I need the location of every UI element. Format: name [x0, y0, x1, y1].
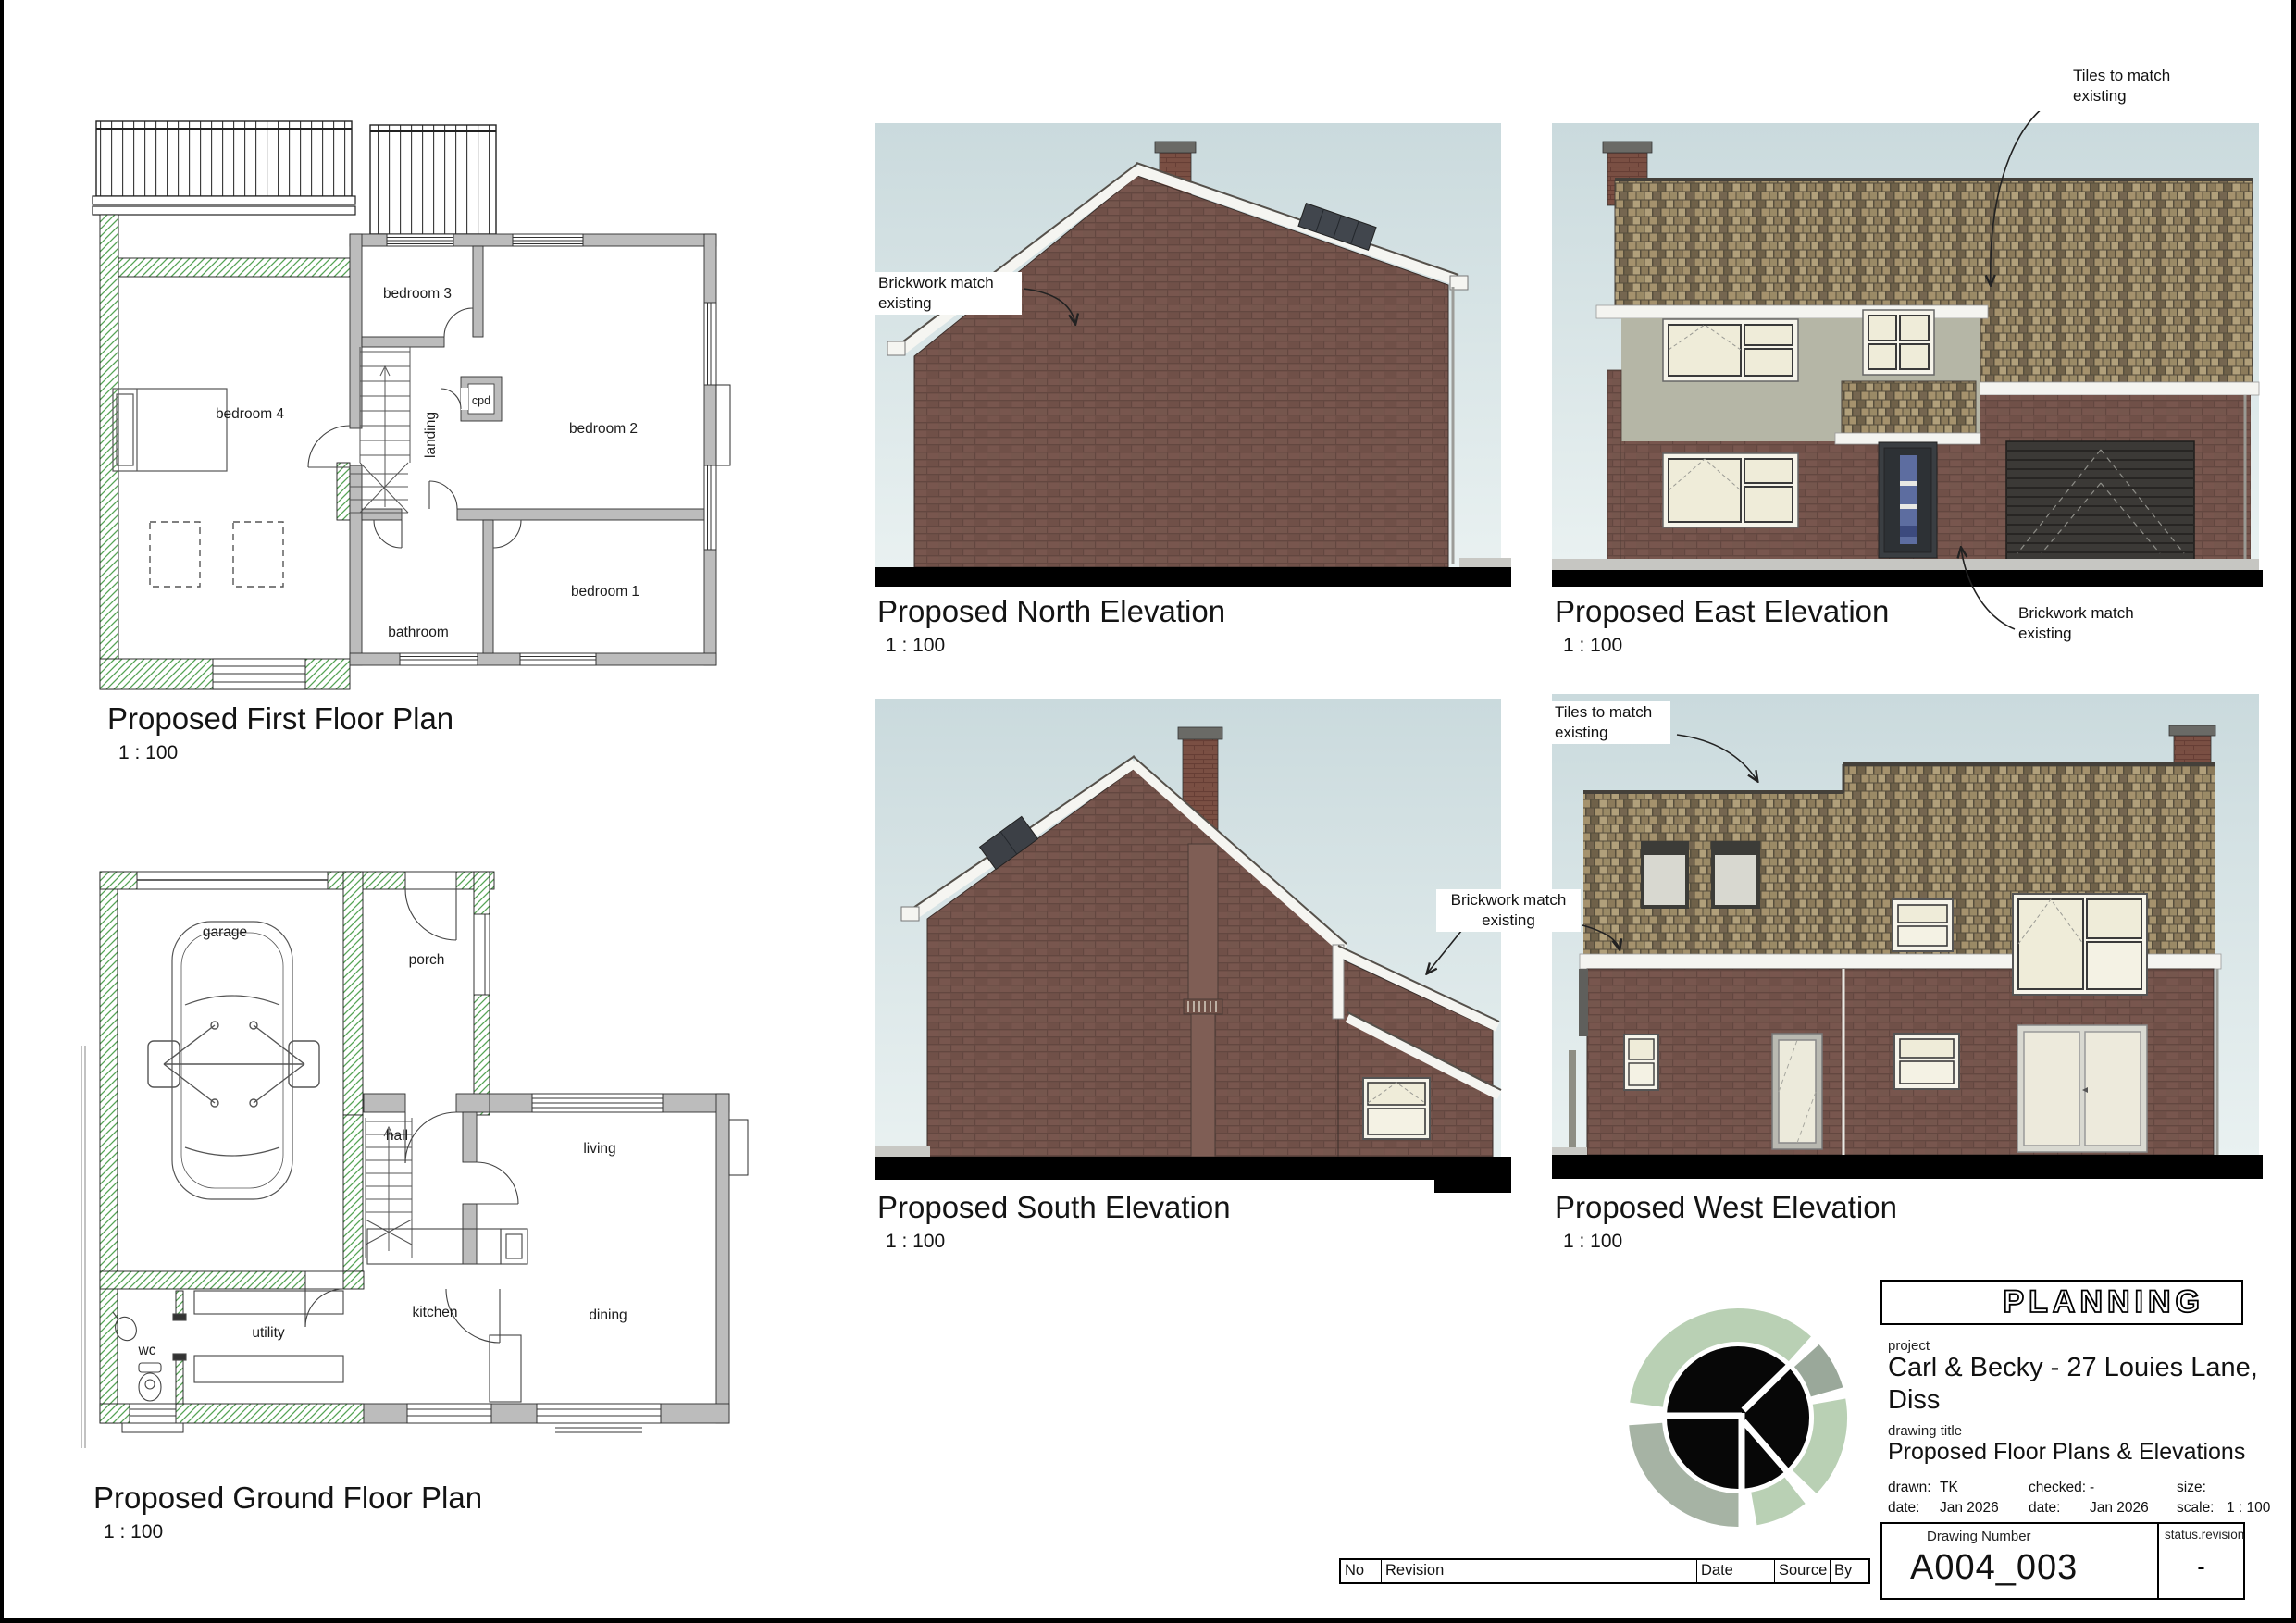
west-window-upper-large — [2013, 894, 2147, 995]
first-floor-plan: bedroom 4 bedroom 3 bedroom 2 bedroom 1 … — [93, 121, 730, 689]
drawing-title-label: drawing title — [1888, 1423, 1962, 1439]
revision-value: - — [2159, 1555, 2243, 1580]
scale-first-floor: 1 : 100 — [118, 742, 178, 764]
date-label-1: date: — [1888, 1500, 1919, 1517]
east-window-upper-right — [1863, 310, 1934, 375]
car-lift-symbol — [148, 1022, 319, 1107]
room-label-bedroom3: bedroom 3 — [383, 286, 452, 302]
scale-label: scale: — [2177, 1500, 2215, 1517]
east-window-lower — [1663, 453, 1798, 527]
checked-value: - — [2090, 1480, 2094, 1496]
room-label-utility: utility — [252, 1325, 285, 1341]
south-extension-window — [1363, 1078, 1430, 1139]
revision-col-date: Date — [1697, 1560, 1775, 1582]
drawing-number-box: Drawing Number A004_003 — [1880, 1522, 2159, 1600]
floor-plans-drawing: bedroom 4 bedroom 3 bedroom 2 bedroom 1 … — [74, 111, 777, 1462]
scale-east-elevation: 1 : 100 — [1563, 635, 1622, 657]
balcony-decking — [93, 121, 496, 234]
west-french-doors — [2017, 1025, 2147, 1152]
title-first-floor: Proposed First Floor Plan — [107, 701, 453, 737]
room-label-wc: wc — [138, 1343, 156, 1358]
revision-col-by: By — [1831, 1560, 1868, 1582]
scale-west-elevation: 1 : 100 — [1563, 1231, 1622, 1253]
scale-north-elevation: 1 : 100 — [886, 635, 945, 657]
annotation-east-tiles: Tiles to match existing — [2070, 65, 2196, 107]
room-label-landing: landing — [423, 412, 439, 458]
west-window-lower-mid — [1894, 1034, 1959, 1089]
elevations-drawing — [833, 111, 2277, 1240]
room-label-porch: porch — [409, 952, 445, 968]
west-ground — [1552, 1155, 2263, 1179]
drawn-value: TK — [1940, 1480, 1958, 1496]
checked-label: checked: — [2029, 1480, 2086, 1496]
room-label-kitchen: kitchen — [412, 1305, 457, 1320]
north-ground-strip — [1459, 558, 1511, 567]
boundary-line — [81, 1046, 85, 1448]
room-label-hall: hall — [386, 1128, 408, 1144]
ground-windows — [407, 1094, 748, 1432]
drawing-title: Proposed Floor Plans & Elevations — [1888, 1439, 2245, 1466]
room-label-bedroom1: bedroom 1 — [571, 584, 639, 600]
room-label-bedroom2: bedroom 2 — [569, 421, 638, 437]
south-ground-step — [1434, 1180, 1511, 1193]
drawing-number-label: Drawing Number — [1927, 1529, 2157, 1544]
west-corner-board — [1579, 969, 1588, 1036]
room-label-living: living — [583, 1141, 615, 1157]
west-window-upper-small — [1893, 899, 1953, 951]
status-label: status — [2165, 1528, 2198, 1542]
north-ground — [875, 567, 1511, 587]
title-east-elevation: Proposed East Elevation — [1555, 594, 1889, 629]
west-glazed-door — [1772, 1034, 1822, 1149]
title-north-elevation: Proposed North Elevation — [877, 594, 1225, 629]
ground-floor-plan: garage porch hall living kitchen dining … — [81, 872, 748, 1448]
revision-col-source: Source — [1775, 1560, 1831, 1582]
east-garage-door — [2006, 441, 2194, 560]
west-elevation — [1552, 694, 2263, 1179]
south-elevation — [875, 699, 1511, 1193]
south-ground-strip — [875, 1146, 930, 1157]
room-label-bedroom4: bedroom 4 — [216, 406, 284, 422]
east-window-upper-left — [1663, 319, 1798, 381]
project-name: Carl & Becky - 27 Louies Lane, Diss — [1888, 1352, 2267, 1417]
east-door-canopy — [1842, 381, 1976, 433]
annotation-north-brickwork: Brickwork match existing — [875, 272, 1022, 315]
scale-value: 1 : 100 — [2227, 1500, 2270, 1517]
annotation-southwest-brickwork: Brickwork match existing — [1436, 889, 1581, 932]
south-ground — [875, 1157, 1511, 1180]
status-box: status . revision - — [2157, 1522, 2245, 1600]
room-label-bathroom: bathroom — [388, 625, 448, 640]
scale-south-elevation: 1 : 100 — [886, 1231, 945, 1253]
car-symbol — [172, 922, 292, 1199]
east-path-strip — [1552, 559, 2259, 570]
drawing-number: A004_003 — [1910, 1548, 2157, 1588]
room-label-dining: dining — [589, 1307, 627, 1323]
tk-logo — [1627, 1301, 1849, 1532]
west-ground-strip — [1552, 1147, 1587, 1155]
date-drawn-value: Jan 2026 — [1940, 1500, 1999, 1517]
planning-stamp-box: PLANNING — [1880, 1280, 2243, 1325]
east-front-door — [1879, 442, 1937, 558]
title-west-elevation: Proposed West Elevation — [1555, 1190, 1897, 1225]
annotation-west-tiles: Tiles to match existing — [1552, 701, 1670, 744]
annotation-east-brickwork: Brickwork match existing — [2016, 602, 2169, 645]
east-ground — [1552, 570, 2263, 587]
east-elevation — [1552, 111, 2263, 629]
title-south-elevation: Proposed South Elevation — [877, 1190, 1231, 1225]
date-checked-value: Jan 2026 — [2090, 1500, 2149, 1517]
north-elevation — [875, 123, 1511, 587]
size-label: size: — [2177, 1480, 2206, 1496]
room-label-cpd: cpd — [472, 394, 490, 407]
west-window-lower-small — [1624, 1035, 1658, 1090]
date-label-2: date: — [2029, 1500, 2060, 1517]
planning-stamp: PLANNING — [1882, 1282, 2241, 1323]
revision-col-no: No — [1341, 1560, 1382, 1582]
drawn-label: drawn: — [1888, 1480, 1931, 1496]
west-fence-post — [1569, 1050, 1576, 1155]
revision-table: No Revision Date Source By — [1339, 1558, 1870, 1584]
east-gutter-right — [1973, 382, 2259, 395]
dashed-openings — [150, 522, 283, 587]
room-label-garage: garage — [203, 924, 247, 940]
revision-col-revision: Revision — [1382, 1560, 1697, 1582]
bed-symbol — [113, 389, 227, 471]
west-chimney — [2174, 733, 2211, 765]
scale-ground-floor: 1 : 100 — [104, 1521, 163, 1543]
ground-main-walls — [364, 1094, 729, 1423]
east-side-pier — [1607, 370, 1621, 570]
revision-label: revision — [2202, 1528, 2245, 1542]
title-ground-floor: Proposed Ground Floor Plan — [93, 1481, 482, 1516]
